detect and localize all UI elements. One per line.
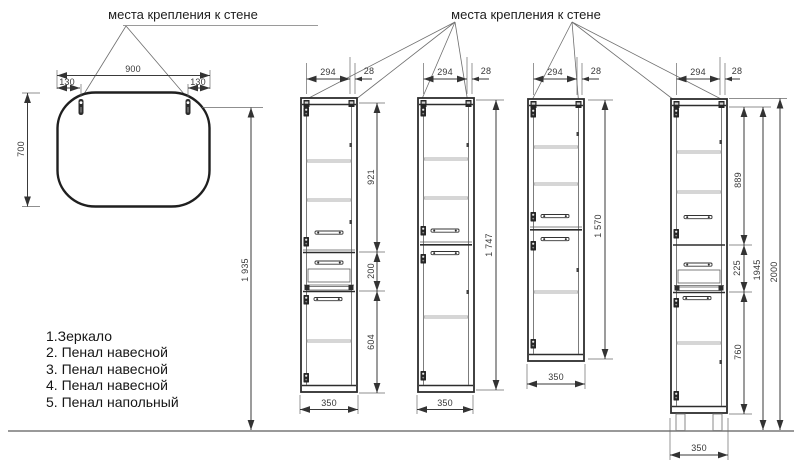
cab5-side-gap-dim: 28 — [732, 66, 742, 76]
cab4-side-gap-dim: 28 — [591, 66, 601, 76]
legend-item-cabinet-4: 4. Пенал навесной — [46, 377, 179, 393]
cab4-height-dim: 1 570 — [593, 214, 603, 238]
cab2-width-dim: 350 — [321, 398, 337, 408]
cab2-door-width-dim: 294 — [320, 67, 336, 77]
legend-item-cabinet-5: 5. Пенал напольный — [46, 394, 179, 410]
cabinet-2-drawing — [301, 98, 357, 392]
cab5-drawer-dim: 225 — [732, 260, 742, 276]
mirror-right-offset-dim: 130 — [190, 77, 206, 87]
mirror-hook-right — [186, 99, 191, 115]
cab3-side-gap-dim: 28 — [481, 66, 491, 76]
cab5-lower-dim: 760 — [733, 344, 743, 360]
legend-item-cabinet-3: 3. Пенал навесной — [46, 361, 179, 377]
mirror-left-offset-dim: 130 — [59, 77, 75, 87]
legend-item-cabinet-2: 2. Пенал навесной — [46, 344, 179, 360]
cab5-body-height-dim: 1945 — [752, 260, 762, 281]
cab5-width-dim: 350 — [691, 443, 707, 453]
legend-item-mirror: 1.Зеркало — [46, 328, 179, 344]
cabinet-4-drawing — [528, 99, 584, 361]
wall-mount-label-right: места крепления к стене — [451, 7, 601, 22]
cab2-lower-dim: 604 — [366, 334, 376, 350]
cabinet-5-foot-right — [713, 414, 722, 431]
cab2-upper-dim: 921 — [366, 169, 376, 185]
wall-mount-label-left: места крепления к стене — [108, 7, 258, 22]
legend-list: 1.Зеркало 2. Пенал навесной 3. Пенал нав… — [46, 328, 179, 410]
cab3-width-dim: 350 — [437, 398, 453, 408]
leader-left-wall-mount — [82, 26, 319, 99]
mirror-hook-left — [79, 99, 84, 115]
mirror-width-dim: 900 — [125, 64, 141, 74]
cab4-door-width-dim: 294 — [547, 67, 563, 77]
mirror-mount-height-dim: 1 935 — [240, 258, 250, 282]
cab2-side-gap-dim: 28 — [364, 66, 374, 76]
cab5-upper-dim: 889 — [733, 172, 743, 188]
cab2-drawer-dim: 200 — [366, 263, 376, 279]
cabinet-5-drawing — [671, 99, 727, 431]
cabinet-5-foot-left — [676, 414, 685, 431]
cab5-total-height-dim: 2000 — [769, 262, 779, 283]
mirror-drawing — [58, 93, 210, 207]
cab5-door-width-dim: 294 — [690, 67, 706, 77]
leader-right-wall-mount — [305, 22, 723, 101]
cab3-door-width-dim: 294 — [437, 67, 453, 77]
cab4-width-dim: 350 — [548, 372, 564, 382]
cab3-height-dim: 1 747 — [484, 233, 494, 257]
technical-drawing-page: места крепления к стене места крепления … — [0, 0, 800, 466]
mirror-height-dim: 700 — [16, 141, 26, 157]
cabinet-3-drawing — [418, 98, 474, 392]
